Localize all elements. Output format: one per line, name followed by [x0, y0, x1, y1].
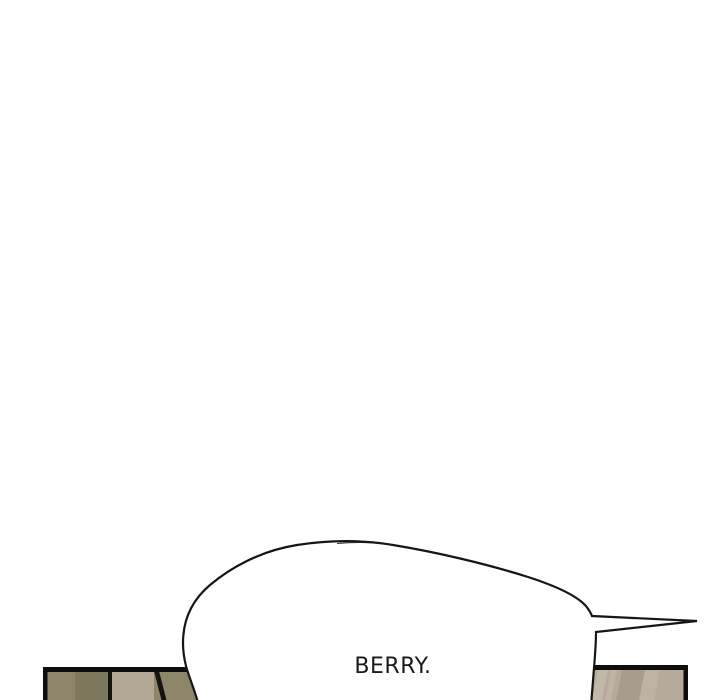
- panel-left-stripe-1: [47, 671, 75, 700]
- panel-left-stripe-3: [112, 671, 154, 700]
- next-panel-left-section: [43, 667, 200, 700]
- panel-right-border-right: [684, 665, 689, 700]
- panel-left-stripe-2: [75, 671, 108, 700]
- comic-scene: [0, 0, 720, 700]
- comic-page: BERRY.: [0, 0, 720, 700]
- panel-right-border-top: [585, 665, 688, 670]
- next-panel-right-section: [585, 665, 688, 700]
- panel-left-border-left: [43, 667, 48, 700]
- panel-left-border-top: [43, 667, 200, 672]
- panel-left-divider-1: [108, 671, 112, 700]
- speech-bubble-text: BERRY.: [293, 654, 493, 680]
